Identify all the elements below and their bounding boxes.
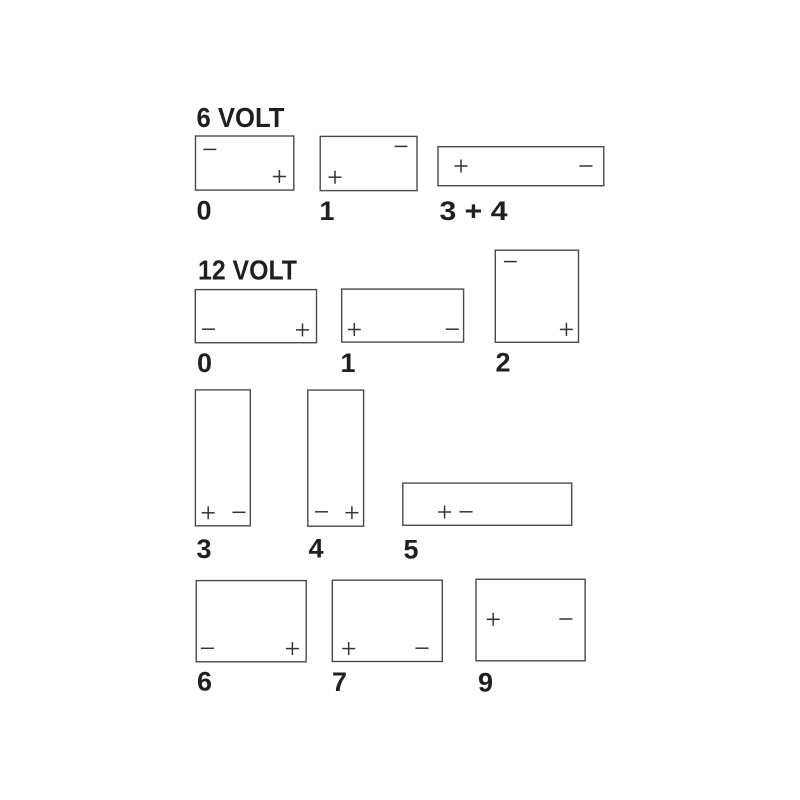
svg-text:7: 7 [332, 667, 347, 697]
svg-text:6: 6 [197, 667, 212, 697]
svg-text:12 VOLT: 12 VOLT [198, 255, 297, 286]
svg-text:9: 9 [478, 668, 493, 698]
svg-text:3: 3 [197, 534, 212, 564]
svg-text:0: 0 [197, 348, 212, 378]
svg-text:2: 2 [496, 348, 511, 378]
svg-text:1: 1 [341, 348, 356, 378]
svg-text:4: 4 [309, 534, 324, 564]
svg-text:3 + 4: 3 + 4 [440, 196, 508, 226]
svg-text:0: 0 [197, 196, 212, 226]
svg-text:1: 1 [320, 196, 335, 226]
svg-text:5: 5 [404, 535, 419, 565]
svg-text:6 VOLT: 6 VOLT [197, 102, 285, 133]
